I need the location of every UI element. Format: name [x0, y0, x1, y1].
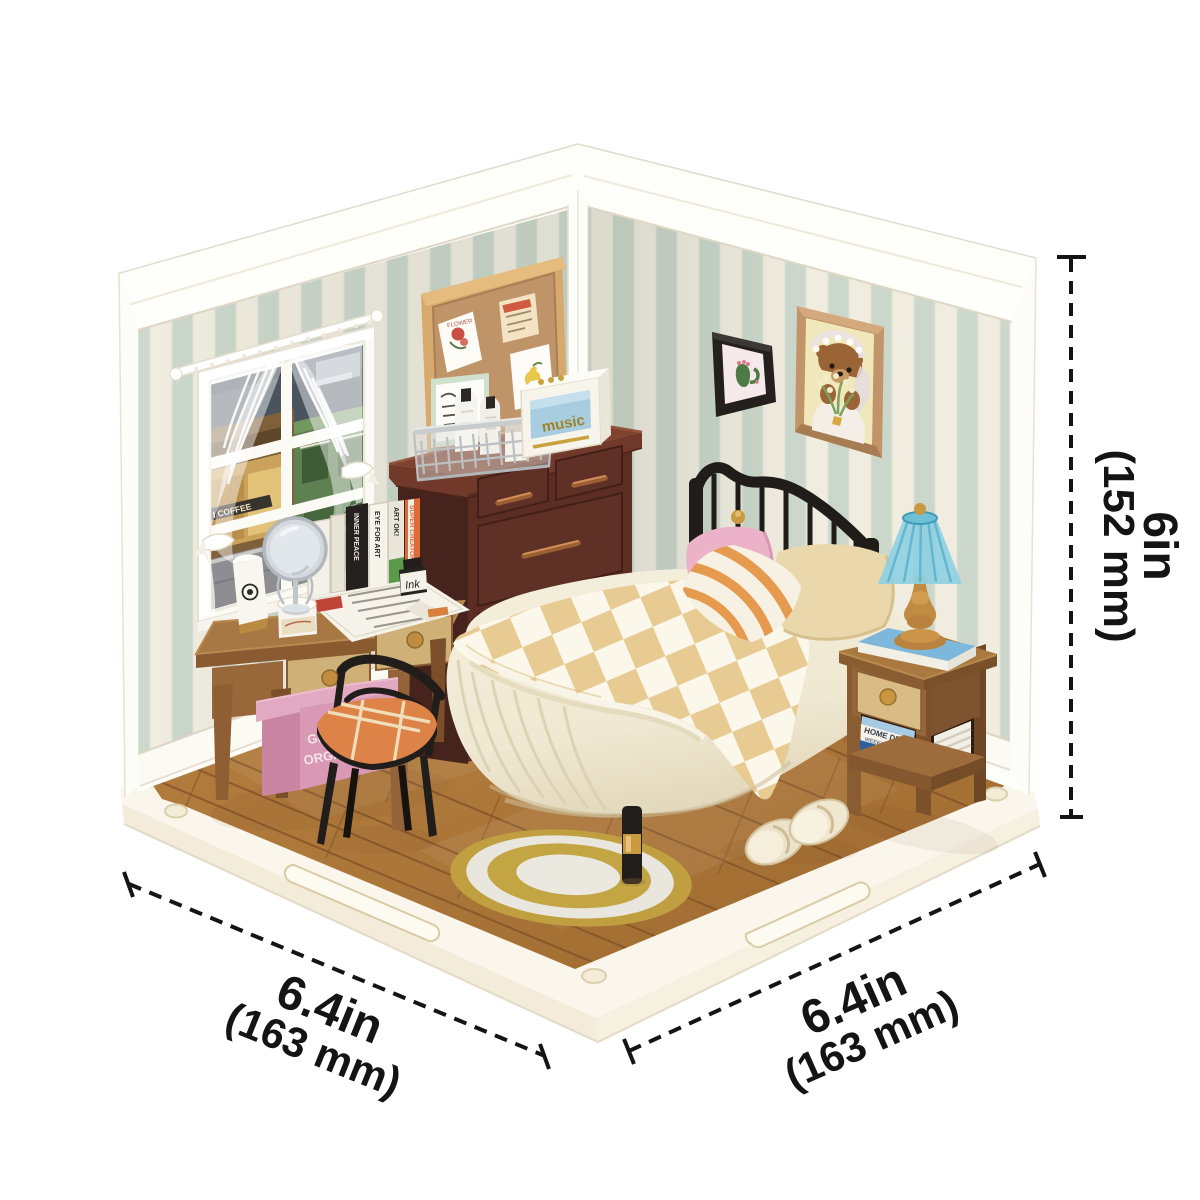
svg-text:Ink: Ink — [405, 578, 421, 592]
svg-text:(152 mm): (152 mm) — [1094, 449, 1143, 642]
svg-text:ART OK!: ART OK! — [392, 507, 399, 536]
svg-text:EYE FOR ART: EYE FOR ART — [373, 511, 380, 559]
svg-text:SUPER CREATOR: SUPER CREATOR — [408, 505, 415, 561]
svg-text:INNER PEACE: INNER PEACE — [352, 513, 359, 561]
